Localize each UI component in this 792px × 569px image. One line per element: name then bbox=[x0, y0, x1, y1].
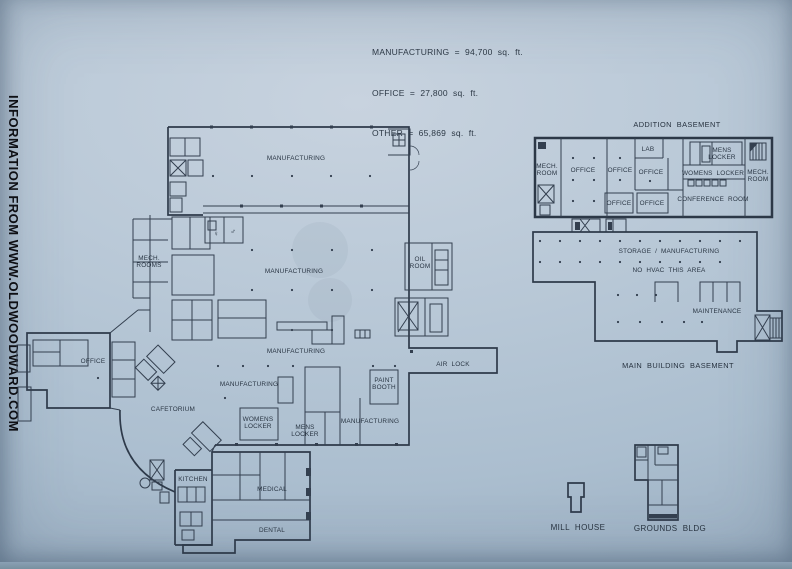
label-ab-office-1: OFFICE bbox=[571, 167, 596, 174]
addition-basement-plan: ADDITION BASEMENT bbox=[535, 120, 772, 232]
column-dots bbox=[97, 175, 396, 399]
main-basement-plan: STORAGE / MANUFACTURING NO HVAC THIS ARE… bbox=[533, 232, 782, 370]
label-paint-booth-1: PAINT bbox=[374, 377, 393, 384]
mens-restroom-icon: ♂ bbox=[230, 227, 236, 236]
restrooms-block: ♀ ♂ bbox=[205, 217, 243, 243]
basement-connector-stubs bbox=[572, 219, 626, 232]
label-air-lock: AIR LOCK bbox=[436, 361, 470, 368]
label-mens-locker-2: LOCKER bbox=[291, 431, 319, 438]
grounds-bldg-plan bbox=[635, 445, 678, 520]
label-ab-mens-locker-1: MENS bbox=[712, 147, 731, 154]
kitchen-medical-rooms bbox=[178, 452, 311, 540]
office-wing-rooms bbox=[17, 310, 150, 421]
label-ab-womens-locker: WOMENS LOCKER bbox=[682, 170, 744, 177]
main-floor-plan: ♀ ♂ bbox=[17, 126, 497, 554]
label-ab-mech-room-right-2: ROOM bbox=[748, 176, 769, 183]
stairwell-block bbox=[170, 138, 203, 212]
label-ab-office-4: OFFICE bbox=[607, 200, 632, 207]
label-ab-mech-room-right-1: MECH. bbox=[747, 169, 769, 176]
label-womens-locker-1: WOMENS bbox=[243, 416, 274, 423]
label-ab-mech-room-left-2: ROOM bbox=[537, 170, 558, 177]
label-ab-conference-room: CONFERENCE ROOM bbox=[677, 196, 748, 203]
label-ab-office-5: OFFICE bbox=[640, 200, 665, 207]
label-mech-rooms-1: MECH. bbox=[138, 255, 160, 262]
label-mech-rooms-2: ROOMS bbox=[136, 262, 161, 269]
label-womens-locker-2: LOCKER bbox=[244, 423, 272, 430]
label-oil-room-2: ROOM bbox=[410, 263, 431, 270]
label-manufacturing-mid: MANUFACTURING bbox=[265, 268, 323, 275]
label-manufacturing-top: MANUFACTURING bbox=[267, 155, 325, 162]
label-ab-office-3: OFFICE bbox=[639, 169, 664, 176]
label-dental: DENTAL bbox=[259, 527, 285, 534]
addition-basement-dots bbox=[572, 157, 651, 202]
label-medical: MEDICAL bbox=[257, 486, 287, 493]
label-mb-no-hvac: NO HVAC THIS AREA bbox=[632, 267, 706, 274]
floor-plan-drawing: ♀ ♂ bbox=[0, 0, 792, 569]
label-oil-room-1: OIL bbox=[415, 256, 426, 263]
label-paint-booth-2: BOOTH bbox=[372, 384, 396, 391]
label-mb-maintenance: MAINTENANCE bbox=[693, 308, 742, 315]
label-manufacturing-se: MANUFACTURING bbox=[341, 418, 399, 425]
mill-house-plan bbox=[568, 483, 584, 512]
blueprint-photo: INFORMATION FROM WWW.OLDWOODWARD.COM MAN… bbox=[0, 0, 792, 569]
label-manufacturing-low: MANUFACTURING bbox=[267, 348, 325, 355]
label-office: OFFICE bbox=[81, 358, 106, 365]
grounds-bldg-caption: GROUNDS BLDG bbox=[634, 524, 706, 533]
label-ab-lab: LAB bbox=[642, 146, 655, 153]
label-cafetorium: CAFETORIUM bbox=[151, 406, 195, 413]
mill-house-caption: MILL HOUSE bbox=[551, 523, 606, 532]
label-mens-locker-1: MENS bbox=[295, 424, 314, 431]
elevator-corner-unit bbox=[388, 129, 419, 170]
label-ab-mens-locker-2: LOCKER bbox=[708, 154, 736, 161]
outbuildings: MILL HOUSE GROUNDS BLDG bbox=[551, 445, 707, 533]
label-ab-office-2: OFFICE bbox=[608, 167, 633, 174]
addition-basement-title: ADDITION BASEMENT bbox=[633, 120, 720, 129]
label-mb-storage: STORAGE / MANUFACTURING bbox=[619, 248, 720, 255]
label-ab-mech-room-left-1: MECH. bbox=[536, 163, 558, 170]
wall-ticks bbox=[210, 126, 413, 447]
label-kitchen: KITCHEN bbox=[178, 476, 208, 483]
main-basement-caption: MAIN BUILDING BASEMENT bbox=[622, 361, 734, 370]
label-manufacturing-sw: MANUFACTURING bbox=[220, 381, 278, 388]
womens-restroom-icon: ♀ bbox=[213, 229, 219, 238]
